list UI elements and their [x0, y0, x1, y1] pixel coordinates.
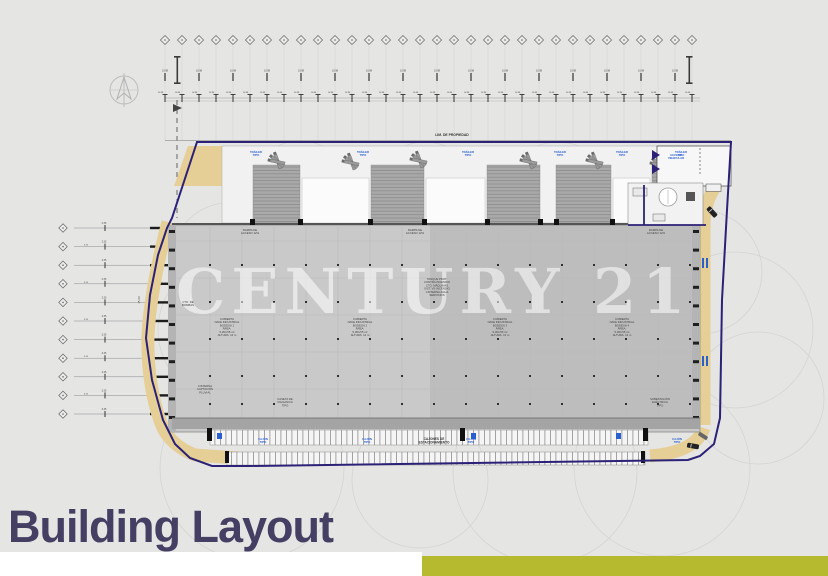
column-dot — [401, 403, 403, 405]
svg-text:3.35: 3.35 — [102, 296, 107, 299]
column-dot — [241, 338, 243, 340]
footer-strip — [0, 552, 422, 576]
column-dot — [209, 375, 211, 377]
dock-door — [368, 219, 373, 225]
svg-text:10.98: 10.98 — [230, 70, 237, 73]
floorplan-drawing: 10.9810.9810.9810.9810.9810.9810.9810.98… — [0, 0, 828, 576]
column-dot — [209, 338, 211, 340]
svg-text:10.98: 10.98 — [583, 92, 589, 94]
column-dot — [305, 403, 307, 405]
dock-door — [298, 219, 303, 225]
svg-text:10.98: 10.98 — [498, 92, 504, 94]
svg-text:10.98: 10.98 — [515, 92, 521, 94]
accent-bar — [422, 556, 828, 576]
plan-label: RAMPA DEACCESO 12% — [241, 228, 260, 235]
svg-text:10.98: 10.98 — [536, 70, 543, 73]
svg-text:10.98: 10.98 — [651, 92, 657, 94]
svg-text:3.35: 3.35 — [102, 315, 107, 318]
svg-text:10.98: 10.98 — [311, 92, 317, 94]
dock-door — [422, 219, 427, 225]
svg-text:3.35: 3.35 — [102, 408, 107, 411]
column-dot — [625, 338, 627, 340]
column-dot — [337, 375, 339, 377]
svg-text:10.98: 10.98 — [158, 92, 164, 94]
svg-text:10.98: 10.98 — [396, 92, 402, 94]
column-dot — [273, 375, 275, 377]
north-arrow-icon — [110, 73, 138, 107]
svg-text:10.98: 10.98 — [570, 70, 577, 73]
svg-text:10.98: 10.98 — [413, 92, 419, 94]
column-dot — [529, 403, 531, 405]
column-dot — [369, 403, 371, 405]
svg-text:10.98: 10.98 — [264, 70, 271, 73]
plan-label: ACCESOVEHICULAR — [668, 153, 684, 160]
svg-text:10.98: 10.98 — [549, 92, 555, 94]
svg-text:10.98: 10.98 — [362, 92, 368, 94]
column-dot — [561, 403, 563, 405]
page: 10.9810.9810.9810.9810.9810.9810.9810.98… — [0, 0, 828, 576]
svg-text:10.98: 10.98 — [532, 92, 538, 94]
svg-text:3.35: 3.35 — [102, 259, 107, 262]
svg-text:10.98: 10.98 — [434, 70, 441, 73]
column-dot — [689, 403, 691, 405]
svg-text:10.98: 10.98 — [634, 92, 640, 94]
column-dot — [465, 375, 467, 377]
column-dot — [657, 338, 659, 340]
column-dot — [593, 403, 595, 405]
svg-text:3.35: 3.35 — [84, 356, 89, 358]
svg-text:3.35: 3.35 — [102, 241, 107, 244]
svg-text:10.98: 10.98 — [672, 70, 679, 73]
svg-text:10.98: 10.98 — [600, 92, 606, 94]
column-dot — [689, 338, 691, 340]
column-dot — [273, 338, 275, 340]
svg-text:10.98: 10.98 — [294, 92, 300, 94]
column-dot — [305, 375, 307, 377]
plan-label: RAMPA DEACCESO 12% — [647, 228, 666, 235]
column-dot — [209, 403, 211, 405]
svg-text:10.98: 10.98 — [332, 70, 339, 73]
column-dot — [465, 338, 467, 340]
svg-text:3.35: 3.35 — [102, 352, 107, 355]
svg-text:10.98: 10.98 — [175, 92, 181, 94]
dock-door — [610, 219, 615, 225]
svg-text:3.35: 3.35 — [84, 393, 89, 395]
column-dot — [593, 375, 595, 377]
column-dot — [497, 338, 499, 340]
svg-text:10.98: 10.98 — [328, 92, 334, 94]
svg-text:10.98: 10.98 — [260, 92, 266, 94]
svg-text:3.35: 3.35 — [84, 245, 89, 247]
svg-text:10.98: 10.98 — [468, 70, 475, 73]
dock-door — [250, 219, 255, 225]
plan-label: CISTERNACAPTACIÓNPLUVIAL — [197, 384, 213, 394]
column-dot — [561, 375, 563, 377]
column-dot — [337, 338, 339, 340]
column-dot — [305, 338, 307, 340]
svg-text:10.98: 10.98 — [464, 92, 470, 94]
column-dot — [401, 375, 403, 377]
dock-door — [485, 219, 490, 225]
svg-text:10.98: 10.98 — [481, 92, 487, 94]
svg-text:3.35: 3.35 — [102, 389, 107, 392]
column-dot — [497, 375, 499, 377]
svg-text:10.98: 10.98 — [668, 92, 674, 94]
column-dot — [433, 338, 435, 340]
svg-text:10.98: 10.98 — [192, 92, 198, 94]
svg-text:10.98: 10.98 — [379, 92, 385, 94]
svg-text:10.98: 10.98 — [685, 92, 691, 94]
column-dot — [433, 403, 435, 405]
column-dot — [401, 338, 403, 340]
column-dot — [593, 338, 595, 340]
svg-text:10.98: 10.98 — [345, 92, 351, 94]
svg-text:3.35: 3.35 — [84, 282, 89, 284]
svg-text:10.98: 10.98 — [566, 92, 572, 94]
property-line-label: LIM. DE PROPIEDAD — [435, 133, 469, 137]
column-dot — [689, 375, 691, 377]
column-dot — [273, 403, 275, 405]
svg-text:10.98: 10.98 — [277, 92, 283, 94]
svg-text:3.35: 3.35 — [102, 371, 107, 374]
svg-text:3.35: 3.35 — [102, 278, 107, 281]
column-dot — [529, 338, 531, 340]
svg-text:3.35: 3.35 — [84, 319, 89, 321]
column-dot — [529, 375, 531, 377]
svg-text:10.98: 10.98 — [209, 92, 215, 94]
svg-text:10.98: 10.98 — [638, 70, 645, 73]
column-dot — [657, 375, 659, 377]
svg-text:10.98: 10.98 — [298, 70, 305, 73]
svg-text:10.98: 10.98 — [604, 70, 611, 73]
svg-text:3.35: 3.35 — [102, 334, 107, 337]
svg-text:10.98: 10.98 — [196, 70, 203, 73]
column-dot — [433, 375, 435, 377]
svg-text:15.00: 15.00 — [137, 296, 141, 304]
svg-text:10.98: 10.98 — [617, 92, 623, 94]
dock-door — [538, 219, 543, 225]
svg-text:10.98: 10.98 — [162, 70, 169, 73]
svg-text:10.98: 10.98 — [502, 70, 509, 73]
top-column-grid: 10.9810.9810.9810.9810.9810.9810.9810.98… — [158, 35, 700, 140]
plan-label: RAMPA DEACCESO 12% — [406, 228, 425, 235]
svg-text:3.35: 3.35 — [102, 222, 107, 225]
column-dot — [241, 375, 243, 377]
column-dot — [625, 375, 627, 377]
column-dot — [241, 403, 243, 405]
svg-text:10.98: 10.98 — [447, 92, 453, 94]
svg-text:10.98: 10.98 — [243, 92, 249, 94]
column-dot — [369, 375, 371, 377]
column-dot — [369, 338, 371, 340]
desk-icon — [653, 214, 665, 221]
svg-text:10.98: 10.98 — [226, 92, 232, 94]
column-dot — [337, 403, 339, 405]
page-title: Building Layout — [8, 504, 333, 549]
column-dot — [497, 403, 499, 405]
svg-text:10.98: 10.98 — [366, 70, 373, 73]
dock-door — [554, 219, 559, 225]
column-dot — [625, 403, 627, 405]
column-dot — [465, 403, 467, 405]
svg-text:10.98: 10.98 — [430, 92, 436, 94]
plan-label: CTO. DEBOMBAS — [182, 300, 194, 307]
svg-text:10.98: 10.98 — [400, 70, 407, 73]
equipment-icon — [686, 192, 695, 201]
column-dot — [561, 338, 563, 340]
